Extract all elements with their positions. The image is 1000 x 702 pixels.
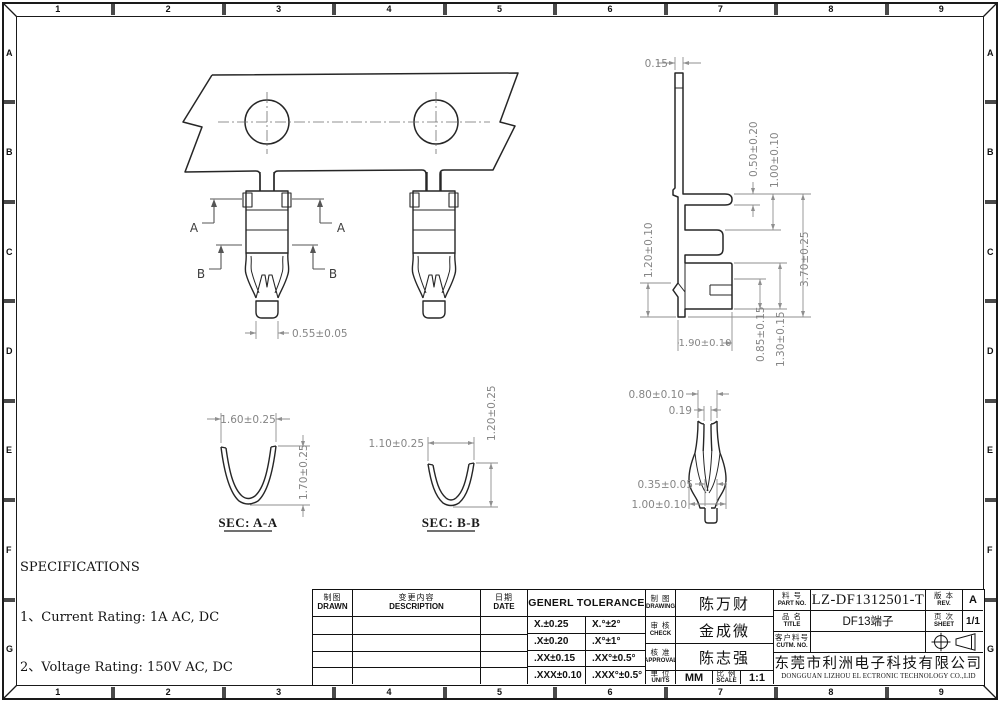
- section-mark-b: [209, 245, 325, 269]
- zone-label: 8: [828, 3, 833, 16]
- dim-hook: 0.50±0.20: [748, 121, 760, 177]
- terminal-front-right: [410, 172, 458, 318]
- zone-label: C: [6, 247, 13, 257]
- dim-total-height: 3.70±0.25: [799, 231, 811, 287]
- side-dim-lines: [640, 57, 811, 351]
- cust-no-label-cn: 客户料号: [775, 634, 809, 642]
- dim-base-width: 1.90±0.10: [679, 338, 732, 349]
- zone-label: 6: [607, 3, 612, 16]
- company: 东莞市利洲电子科技有限公司 DONGGUAN LIZHOU EL ECTRONI…: [774, 653, 983, 684]
- dim-sec-b-width: 1.10±0.25: [368, 438, 424, 450]
- revision-description-en: DESCRIPTION: [389, 603, 444, 612]
- revision-drawn-en: DRAWN: [317, 603, 347, 612]
- tolerance-cell: .X±0.20: [528, 634, 586, 651]
- sheet-value: 1/1: [963, 611, 983, 632]
- terminal-front-left: [243, 172, 291, 318]
- tolerance-cell: .XX°±0.5°: [586, 651, 646, 668]
- zone-divider: [664, 687, 668, 698]
- zone-label: 3: [276, 3, 281, 16]
- dim-sec-b-height: 1.20±0.25: [486, 385, 498, 441]
- zone-label: E: [987, 445, 993, 455]
- check-label-en: CHECK: [650, 631, 671, 638]
- scale-label-en: SCALE: [716, 678, 736, 684]
- zone-label: F: [6, 545, 12, 555]
- specifications-heading: SPECIFICATIONS: [20, 560, 300, 577]
- dim-pin: 0.15: [645, 58, 668, 70]
- zone-label: 9: [939, 3, 944, 16]
- scale-label-cn: 比 例: [716, 671, 736, 678]
- zone-label: D: [6, 346, 13, 356]
- dim-width: 1.00±0.10: [631, 499, 687, 511]
- zone-divider: [885, 4, 889, 15]
- zone-label: 6: [607, 686, 612, 699]
- tolerance-cell: X.°±2°: [586, 617, 646, 634]
- cust-no-label-en: CUTM. NO.: [776, 643, 807, 650]
- sheet-label-cn: 页 次: [934, 613, 954, 621]
- tolerance-cell: .X°±1°: [586, 634, 646, 651]
- part-no-value: LZ-DF1312501-T: [811, 590, 926, 611]
- zone-divider: [4, 100, 15, 104]
- title-label-cn: 品 名: [782, 613, 802, 621]
- zone-label: 8: [828, 686, 833, 699]
- sheet-label: 页 次 SHEET: [926, 611, 963, 632]
- title-label-en: TITLE: [784, 622, 801, 629]
- rev-label-en: REV.: [937, 601, 950, 608]
- company-name-cn: 东莞市利洲电子科技有限公司: [775, 655, 983, 673]
- drawing-name: 陈万财: [676, 590, 774, 617]
- zone-divider: [332, 687, 336, 698]
- scale-label: 比 例 SCALE: [713, 671, 741, 684]
- projection-symbol-cell: [926, 632, 983, 653]
- zone-label: G: [6, 644, 13, 654]
- zone-divider: [885, 687, 889, 698]
- dim-wings: 0.80±0.10: [628, 389, 684, 401]
- units-label-en: UNITS: [652, 678, 670, 684]
- approval-label: 核 准 APPROVAL: [646, 644, 676, 671]
- check-label-cn: 审 核: [650, 622, 670, 630]
- zone-divider: [4, 598, 15, 602]
- zone-band-left: ABCDEFG: [3, 3, 16, 699]
- zone-label: 5: [497, 3, 502, 16]
- title-label: 品 名 TITLE: [774, 611, 811, 632]
- dim-tip-width: 0.55±0.05: [292, 328, 348, 340]
- zone-divider: [553, 4, 557, 15]
- approval-label-cn: 核 准: [650, 649, 670, 657]
- dim-tip-width-lines: [245, 321, 289, 339]
- zone-divider: [774, 4, 778, 15]
- company-name-en: DONGGUAN LIZHOU EL ECTRONIC TECHNOLOGY C…: [781, 673, 976, 681]
- dim-slot: 0.19: [669, 405, 692, 417]
- end-view-shape: [689, 421, 726, 523]
- rev-value: A: [963, 590, 983, 611]
- revision-description-header: 变更内容 DESCRIPTION: [353, 590, 481, 617]
- front-view: A A B B 0.55±0.05: [160, 60, 550, 360]
- tolerance-cell: .XXX±0.10: [528, 667, 586, 684]
- section-b-label: B: [197, 267, 205, 281]
- revision-drawn-header: 制图 DRAWN: [313, 590, 353, 617]
- tolerance-cell: X.±0.25: [528, 617, 586, 634]
- dim-notch: 0.85±0.15: [755, 306, 767, 362]
- carrier-strip: [183, 73, 518, 191]
- drawing-label-en: DRAWING: [646, 604, 675, 611]
- zone-label: F: [987, 545, 993, 555]
- zone-divider: [332, 4, 336, 15]
- check-label: 审 核 CHECK: [646, 617, 676, 644]
- zone-label: 9: [939, 686, 944, 699]
- section-a-label: A: [337, 221, 346, 235]
- end-view: 0.80±0.10 0.19 0.35±0.05 1.00±0.10: [610, 380, 810, 532]
- dim-step: 1.00±0.10: [769, 132, 781, 188]
- zone-label: 5: [497, 686, 502, 699]
- dim-lower: 1.30±0.15: [775, 311, 787, 367]
- zone-label: 4: [387, 686, 392, 699]
- units-value: MM: [676, 671, 713, 684]
- zone-divider: [774, 687, 778, 698]
- zone-label: G: [987, 644, 994, 654]
- rev-label-cn: 版 本: [934, 592, 954, 600]
- zone-divider: [111, 4, 115, 15]
- zone-label: 1: [55, 3, 60, 16]
- cust-no-label: 客户料号 CUTM. NO.: [774, 632, 811, 653]
- zone-band-top: 123456789: [3, 3, 997, 16]
- side-view: 0.15 0.50±0.20 1.00±0.10 3.70±0.25 1.20±…: [620, 40, 1000, 385]
- spec-line: 1、Current Rating: 1A AC, DC: [20, 610, 300, 627]
- zone-label: 4: [387, 3, 392, 16]
- zone-divider: [985, 498, 996, 502]
- tolerance-cell: .XX±0.15: [528, 651, 586, 668]
- approval-name: 陈志强: [676, 644, 774, 671]
- zone-divider: [664, 4, 668, 15]
- zone-label: A: [6, 48, 13, 58]
- zone-label: 7: [718, 3, 723, 16]
- section-b-title: SEC: B-B: [422, 515, 481, 530]
- zone-divider: [4, 299, 15, 303]
- check-name: 金成微: [676, 617, 774, 644]
- units-label: 单 位 UNITS: [646, 671, 676, 684]
- section-b-view: 1.10±0.25 1.20±0.25 SEC: B-B: [370, 393, 550, 543]
- sheet-label-en: SHEET: [934, 622, 954, 629]
- dim-sec-a-height: 1.70±0.25: [298, 444, 310, 500]
- units-label-cn: 单 位: [650, 671, 670, 678]
- part-no-label-en: PART NO.: [778, 601, 806, 608]
- section-b-shape: [428, 463, 474, 506]
- section-mark-a: [202, 199, 332, 223]
- spec-line: 2、Voltage Rating: 150V AC, DC: [20, 660, 300, 677]
- zone-divider: [443, 4, 447, 15]
- zone-divider: [4, 200, 15, 204]
- rev-label: 版 本 REV.: [926, 590, 963, 611]
- cust-no-value: [811, 632, 926, 653]
- zone-divider: [553, 687, 557, 698]
- zone-divider: [985, 598, 996, 602]
- part-no-label: 料 号 PART NO.: [774, 590, 811, 611]
- zone-label: 2: [166, 3, 171, 16]
- drawing-sheet: 123456789 123456789 ABCDEFG ABCDEFG: [0, 0, 1000, 702]
- tolerance-title: GENERL TOLERANCE: [528, 590, 646, 617]
- title-value: DF13端子: [811, 611, 926, 632]
- section-a-view: 1.60±0.25 1.70±0.25 SEC: A-A: [180, 393, 370, 543]
- section-a-label: A: [190, 221, 199, 235]
- zone-label: E: [6, 445, 12, 455]
- drawing-label: 制 图 DRAWING: [646, 590, 676, 617]
- zone-label: 7: [718, 686, 723, 699]
- section-b-label: B: [329, 267, 337, 281]
- terminal-side-profile: [673, 73, 732, 317]
- zone-divider: [985, 399, 996, 403]
- dim-tab: 0.35±0.05: [637, 479, 693, 491]
- scale-value: 1:1: [741, 671, 774, 684]
- drawing-label-cn: 制 图: [650, 595, 670, 603]
- third-angle-projection-icon: [928, 632, 981, 652]
- tolerance-cell: .XXX°±0.5°: [586, 667, 646, 684]
- title-block: 制图 DRAWN 变更内容 DESCRIPTION 日期 DATE GENERL…: [312, 589, 985, 686]
- section-a-shape: [221, 446, 276, 504]
- zone-divider: [4, 399, 15, 403]
- zone-divider: [222, 4, 226, 15]
- dim-sec-a-width: 1.60±0.25: [220, 414, 276, 426]
- zone-divider: [4, 498, 15, 502]
- zone-divider: [443, 687, 447, 698]
- dim-lance: 1.20±0.10: [643, 222, 655, 278]
- revision-date-header: 日期 DATE: [481, 590, 528, 617]
- approval-label-en: APPROVAL: [646, 658, 676, 665]
- specifications: SPECIFICATIONS 1、Current Rating: 1A AC, …: [20, 526, 300, 702]
- part-no-label-cn: 料 号: [782, 592, 802, 600]
- zone-label: B: [6, 147, 13, 157]
- revision-date-en: DATE: [493, 603, 514, 612]
